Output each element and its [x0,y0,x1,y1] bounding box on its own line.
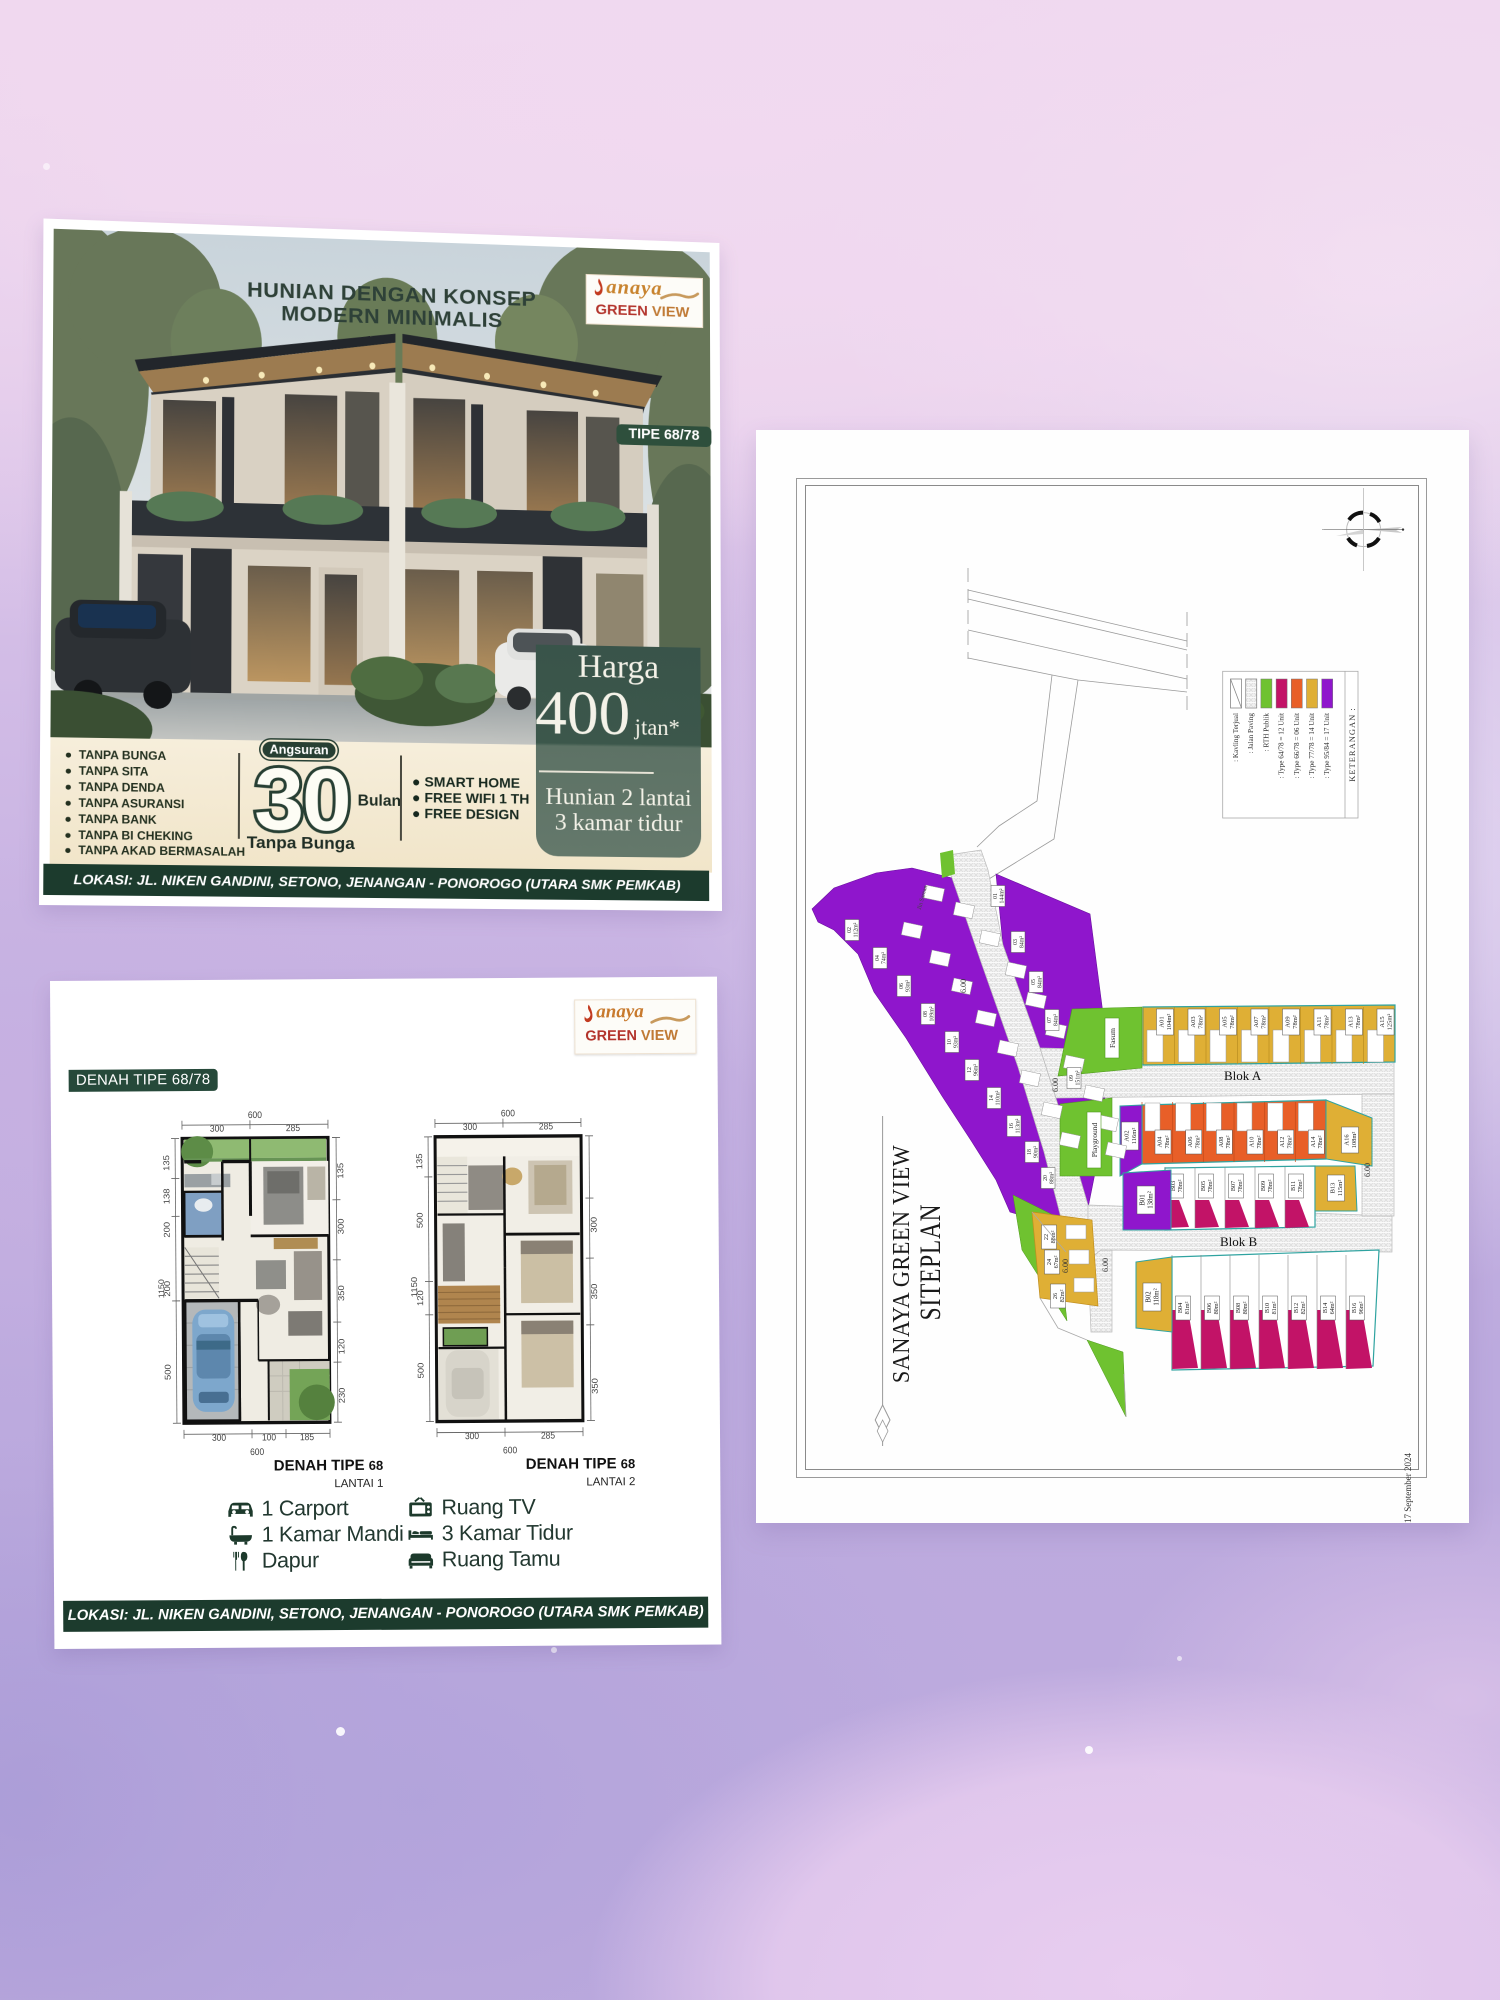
svg-text:350: 350 [336,1285,346,1301]
svg-text:B01: B01 [1140,1194,1147,1205]
svg-text:93m²: 93m² [954,1036,960,1048]
svg-text:01: 01 [993,893,999,899]
svg-text:78m²: 78m² [1229,1015,1236,1029]
svg-text:78m²: 78m² [1256,1135,1263,1148]
svg-text:78m²: 78m² [1195,1135,1202,1148]
svg-text:: Type 64/78 = 12 Unit: : Type 64/78 = 12 Unit [1278,713,1286,779]
svg-text:A02: A02 [1124,1130,1131,1141]
svg-text:500: 500 [416,1363,426,1379]
svg-text:120: 120 [337,1339,347,1355]
svg-text:A15: A15 [1379,1016,1386,1027]
svg-text:09: 09 [1069,1075,1075,1081]
svg-text:6.00: 6.00 [1051,1078,1060,1092]
svg-text:05: 05 [1031,979,1037,985]
svg-text:135: 135 [415,1153,425,1169]
svg-text:104m²: 104m² [1166,1014,1173,1031]
svg-text:80m²: 80m² [1213,1301,1220,1314]
svg-text:A10: A10 [1249,1137,1256,1148]
svg-text:135: 135 [162,1155,172,1171]
svg-text:151m²: 151m² [1076,1070,1082,1085]
svg-text:115m²: 115m² [1337,1180,1344,1197]
svg-text:A01: A01 [1159,1016,1166,1027]
svg-text:138: 138 [162,1189,172,1205]
svg-text:82m²: 82m² [1300,1301,1307,1314]
svg-text:112m²: 112m² [854,922,860,937]
svg-text:04: 04 [875,955,881,961]
svg-text:200: 200 [162,1222,172,1238]
svg-text:06: 06 [899,983,905,989]
svg-text:81m²: 81m² [1271,1301,1278,1314]
svg-text:78m²: 78m² [1198,1015,1205,1029]
svg-text:113m²: 113m² [1016,1118,1022,1133]
svg-text:120: 120 [415,1290,425,1306]
svg-text:: RTH Publik: : RTH Publik [1262,713,1270,752]
svg-text:SANAYA GREEN VIEW: SANAYA GREEN VIEW [888,1145,915,1383]
svg-text:500: 500 [415,1212,425,1228]
svg-text:Playground: Playground [1090,1122,1099,1157]
svg-text:: Jalan Paving: : Jalan Paving [1247,713,1255,754]
svg-text:Fasum: Fasum [1108,1028,1117,1048]
svg-text:78m²: 78m² [1317,1135,1324,1148]
svg-text:96m²: 96m² [1358,1301,1365,1314]
svg-text:A03: A03 [1190,1016,1197,1027]
svg-text:74m²: 74m² [882,952,888,964]
svg-text:125m²: 125m² [1387,1014,1394,1031]
svg-text:A07: A07 [1253,1016,1260,1028]
svg-text:230: 230 [337,1388,347,1404]
svg-text:6.00: 6.00 [1363,1163,1372,1177]
svg-text:17 September 2024: 17 September 2024 [1403,1453,1413,1523]
svg-text:116m²: 116m² [1131,1128,1138,1145]
svg-text:144m²: 144m² [1000,888,1006,903]
svg-text:6.00: 6.00 [1101,1258,1110,1272]
svg-text:A16: A16 [1344,1134,1351,1146]
svg-text:A05: A05 [1222,1016,1229,1027]
svg-text:KETERANGAN :: KETERANGAN : [1347,707,1357,782]
svg-text:90m²: 90m² [1034,1146,1040,1158]
svg-text:78m²: 78m² [1225,1135,1232,1148]
svg-text:84m²: 84m² [1038,976,1044,988]
svg-text:Blok A: Blok A [1224,1068,1262,1083]
svg-text:600: 600 [250,1446,264,1457]
svg-text:108m²: 108m² [1351,1132,1358,1149]
svg-text:84m²: 84m² [1054,1014,1060,1026]
svg-text:B13: B13 [1330,1183,1337,1194]
svg-text:78m²: 78m² [1324,1015,1331,1029]
svg-text:02: 02 [847,927,853,933]
svg-text:: Kavling Terjual: : Kavling Terjual [1232,713,1240,762]
svg-text:118m²: 118m² [1153,1288,1160,1305]
svg-text:78m²: 78m² [1287,1135,1294,1148]
svg-text:88m²: 88m² [1050,1172,1056,1184]
svg-text:A14: A14 [1310,1136,1317,1148]
svg-text:A11: A11 [1316,1017,1323,1028]
svg-text:A04: A04 [1157,1136,1164,1148]
svg-text:1150: 1150 [156,1279,166,1298]
svg-text:109m²: 109m² [930,1006,936,1021]
svg-text:20: 20 [1043,1175,1049,1181]
svg-text:350: 350 [589,1284,599,1300]
svg-text:78m²: 78m² [1237,1179,1244,1192]
svg-text:78m²: 78m² [1267,1179,1274,1192]
svg-text:78m²: 78m² [1292,1015,1299,1029]
svg-text:80m²: 80m² [1242,1301,1249,1314]
svg-text:78m²: 78m² [1177,1179,1184,1192]
svg-text:78m²: 78m² [1297,1179,1304,1192]
svg-text:93m²: 93m² [906,980,912,992]
svg-text:A13: A13 [1348,1016,1355,1027]
svg-text:6.00: 6.00 [1061,1259,1070,1273]
svg-text:SITEPLAN: SITEPLAN [913,1204,946,1321]
svg-text:14: 14 [989,1095,995,1101]
svg-text:350: 350 [590,1378,600,1394]
svg-text:84m²: 84m² [1020,936,1026,948]
svg-text:96m²: 96m² [974,1064,980,1076]
svg-text:82m²: 82m² [1059,1289,1066,1302]
svg-text:78m²: 78m² [1207,1179,1214,1192]
svg-text:500: 500 [163,1364,173,1380]
svg-text:300: 300 [336,1219,346,1235]
svg-text:10: 10 [947,1039,953,1045]
svg-text:135: 135 [336,1163,346,1179]
svg-text:18: 18 [1027,1149,1033,1155]
svg-text:16: 16 [1009,1123,1015,1129]
svg-text:A12: A12 [1279,1137,1286,1148]
svg-text:: Type 77/78 = 14 Unit: : Type 77/78 = 14 Unit [1308,713,1316,779]
svg-text:07: 07 [1047,1017,1053,1023]
svg-text:78m²: 78m² [1355,1015,1362,1029]
svg-text:300: 300 [589,1217,599,1233]
svg-text:12: 12 [967,1067,973,1073]
svg-text:78m²: 78m² [1261,1015,1268,1029]
svg-text:: Type 95/84 = 17 Unit: : Type 95/84 = 17 Unit [1323,713,1331,779]
svg-text:: Type 66/78 = 06 Unit: : Type 66/78 = 06 Unit [1293,713,1301,779]
svg-text:08: 08 [923,1011,929,1017]
svg-text:78m²: 78m² [1164,1135,1171,1148]
svg-text:A09: A09 [1285,1016,1292,1027]
svg-text:600: 600 [248,1110,262,1121]
svg-text:6.00: 6.00 [959,979,968,993]
svg-text:110m²: 110m² [996,1090,1002,1105]
svg-text:A06: A06 [1187,1137,1194,1148]
svg-text:03: 03 [1013,939,1019,945]
svg-text:A08: A08 [1218,1137,1225,1148]
svg-text:B02: B02 [1146,1291,1153,1303]
svg-text:67m²: 67m² [1053,1255,1060,1268]
svg-text:Blok B: Blok B [1220,1234,1258,1249]
svg-text:600: 600 [503,1445,517,1456]
svg-text:600: 600 [501,1108,515,1119]
svg-text:138m²: 138m² [1147,1191,1154,1209]
svg-text:64m²: 64m² [1329,1301,1336,1314]
svg-text:81m²: 81m² [1184,1301,1191,1314]
